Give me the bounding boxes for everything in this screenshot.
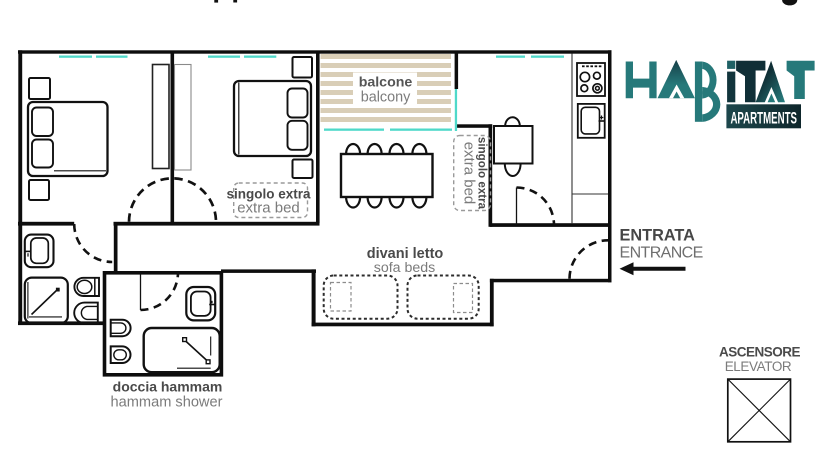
- svg-text:balcony: balcony: [361, 90, 411, 106]
- svg-text:extra bed: extra bed: [461, 142, 478, 205]
- svg-text:ASCENSORE: ASCENSORE: [719, 345, 801, 360]
- svg-text:APARTMENTS: APARTMENTS: [730, 109, 797, 128]
- svg-text:extra bed: extra bed: [237, 200, 300, 217]
- svg-text:doccia hammam: doccia hammam: [113, 379, 223, 395]
- svg-text:hammam shower: hammam shower: [111, 395, 223, 411]
- svg-text:ENTRATA: ENTRATA: [620, 227, 696, 245]
- svg-text:sofa beds: sofa beds: [374, 260, 436, 276]
- svg-text:ELEVATOR: ELEVATOR: [725, 359, 792, 374]
- svg-text:balcone: balcone: [359, 75, 413, 91]
- svg-text:ENTRANCE: ENTRANCE: [620, 245, 703, 262]
